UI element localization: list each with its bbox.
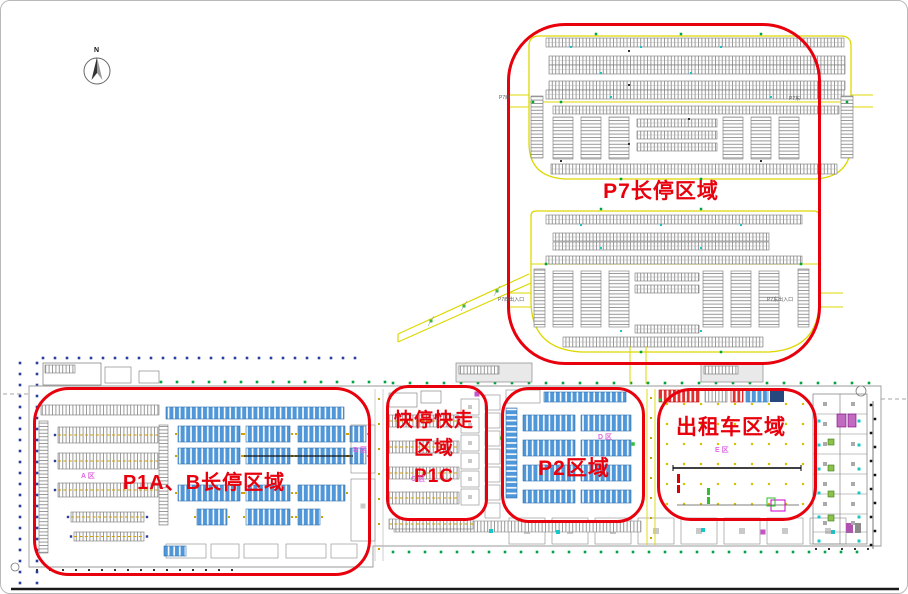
taxi-area-plan bbox=[659, 390, 805, 511]
zone-label-b: B 区 bbox=[353, 445, 367, 455]
floor-plan-canvas: N P7长停区域 P1A、B长停区域 快停快走 区域 P1C P2区域 出租车区… bbox=[0, 0, 908, 594]
label-p7-west-entrance: P7西出入口 bbox=[498, 297, 524, 303]
zone-label-e: E 区 bbox=[715, 445, 729, 455]
annotation-label-p1ab: P1A、B长停区域 bbox=[54, 466, 354, 495]
label-p7-east-gate-small: P7东 bbox=[789, 96, 800, 102]
compass-n-label: N bbox=[94, 47, 99, 54]
zone-label-d: D 区 bbox=[598, 432, 612, 442]
annotation-label-p7: P7长停区域 bbox=[511, 175, 811, 205]
label-p7-east-entrance: P7东出入口 bbox=[767, 297, 793, 303]
annotation-label-p1c: 快停快走 区域 P1C bbox=[386, 407, 482, 491]
right-service-rooms bbox=[813, 394, 876, 549]
p1c-label-line3: P1C bbox=[386, 463, 482, 491]
p7-upper-parking-block bbox=[507, 33, 873, 181]
annotation-label-taxi: 出租车区域 bbox=[656, 411, 806, 441]
compass-north-indicator: N bbox=[81, 47, 115, 93]
label-p7-west-gate-small: P7西 bbox=[499, 95, 510, 101]
zone-label-c: C 区 bbox=[411, 474, 425, 484]
zone-label-a: A 区 bbox=[81, 471, 95, 481]
annotation-label-p2: P2区域 bbox=[504, 452, 644, 482]
p7-lower-parking-block bbox=[507, 208, 843, 354]
p1c-label-line1: 快停快走 bbox=[386, 407, 482, 435]
p2-parking-area bbox=[500, 390, 635, 503]
p1c-label-line2: 区域 bbox=[386, 435, 482, 463]
